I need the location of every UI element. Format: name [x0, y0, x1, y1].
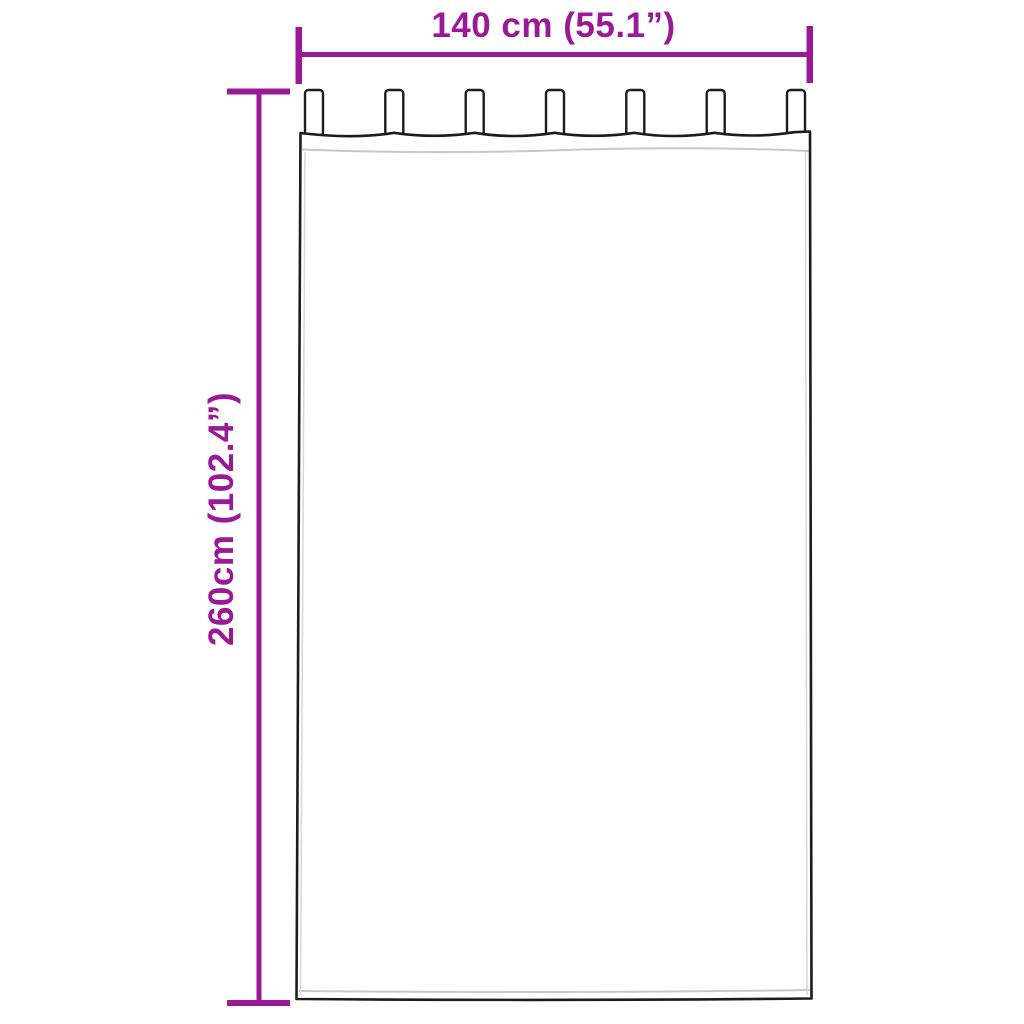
- curtain-body: [297, 132, 812, 1000]
- curtain-tab: [626, 90, 644, 136]
- height-dimension-label: 260cm (102.4”): [202, 392, 242, 646]
- product-dimension-diagram: 140 cm (55.1”) 260cm (102.4”): [0, 0, 1024, 1024]
- curtain-tabs: [305, 90, 805, 136]
- curtain-tab: [385, 90, 403, 136]
- curtain-tab: [305, 90, 323, 136]
- height-dimension-cap-top: [227, 89, 290, 95]
- width-dimension-label: 140 cm (55.1”): [297, 6, 810, 46]
- curtain-tab: [546, 90, 564, 136]
- diagram-canvas: [0, 0, 1024, 1024]
- curtain-tab: [707, 90, 725, 136]
- height-dimension-cap-bottom: [227, 1000, 290, 1006]
- curtain-tab: [466, 90, 484, 136]
- curtain-tab: [787, 90, 805, 136]
- height-dimension-bar: [257, 91, 262, 1003]
- width-dimension-bar: [297, 52, 810, 57]
